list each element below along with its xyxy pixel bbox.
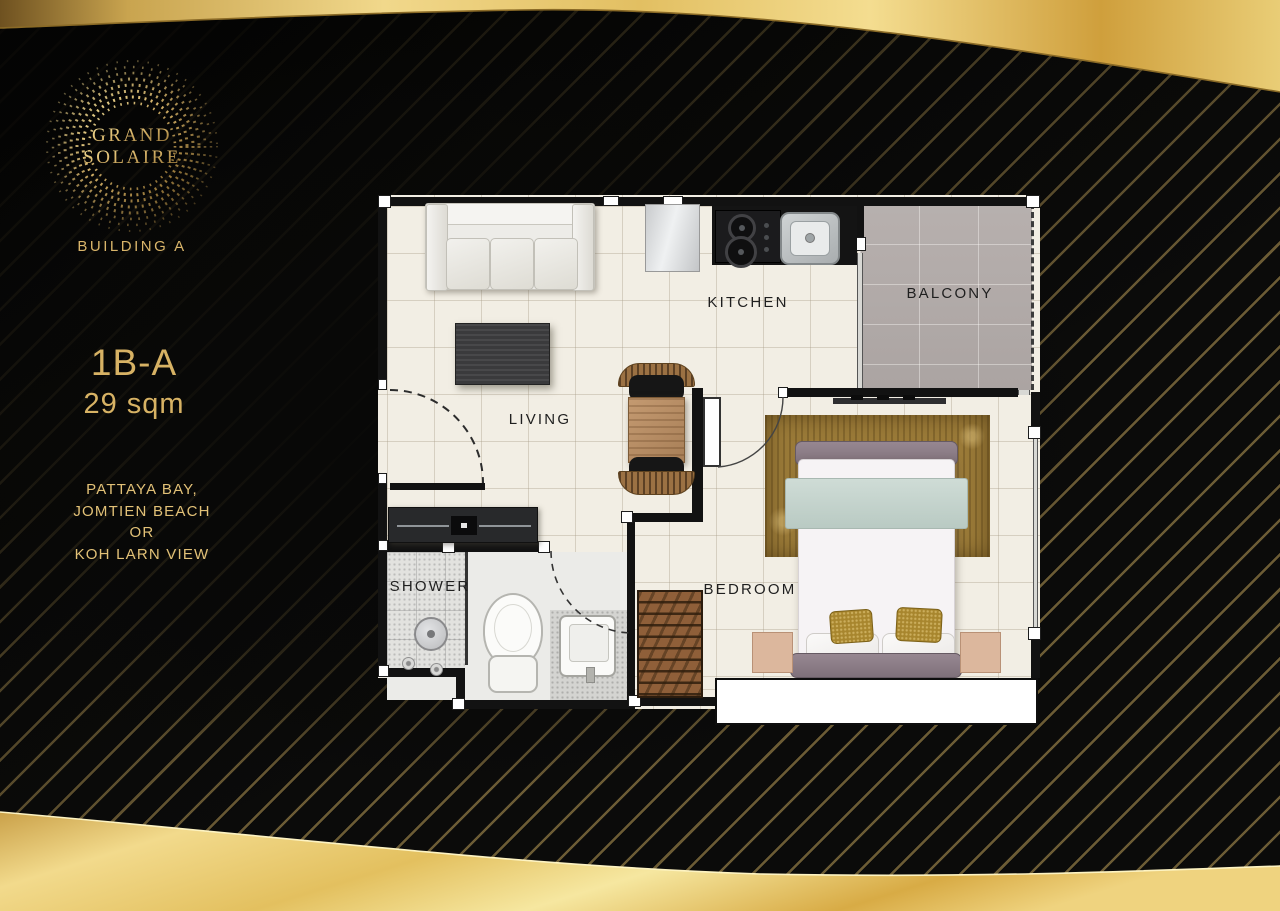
bedroom-door-arc <box>718 397 783 467</box>
logo-text-grand: GRAND <box>92 125 172 146</box>
grand-solaire-logo: GRAND SOLAIRE <box>46 60 218 236</box>
room-label-shower: SHOWER <box>390 578 471 595</box>
brochure-page: GRAND SOLAIRE BUILDING A 1B-A 29 sqm PAT… <box>0 0 1280 911</box>
room-label-kitchen: KITCHEN <box>707 294 788 311</box>
gold-band-bottom <box>0 801 1280 911</box>
room-label-bedroom: BEDROOM <box>704 581 797 598</box>
bathroom-door-arc <box>551 551 633 633</box>
building-label: BUILDING A <box>77 238 186 255</box>
view-line: KOH LARN VIEW <box>73 544 210 566</box>
unit-type-name: 1B-A <box>91 342 177 384</box>
room-label-living: LIVING <box>509 411 571 428</box>
view-line: JOMTIEN BEACH <box>73 501 210 523</box>
unit-area: 29 sqm <box>83 388 184 421</box>
view-line: PATTAYA BAY, <box>73 479 210 501</box>
floor-plan: KITCHEN LIVING BALCONY BEDROOM SHOWER <box>378 195 1040 730</box>
door-swing-arcs <box>378 195 1040 730</box>
view-line: OR <box>73 522 210 544</box>
logo-text-solaire: SOLAIRE <box>83 147 181 168</box>
entry-door-arc <box>390 390 483 483</box>
view-description: PATTAYA BAY, JOMTIEN BEACH OR KOH LARN V… <box>73 479 210 565</box>
room-label-balcony: BALCONY <box>906 285 993 302</box>
